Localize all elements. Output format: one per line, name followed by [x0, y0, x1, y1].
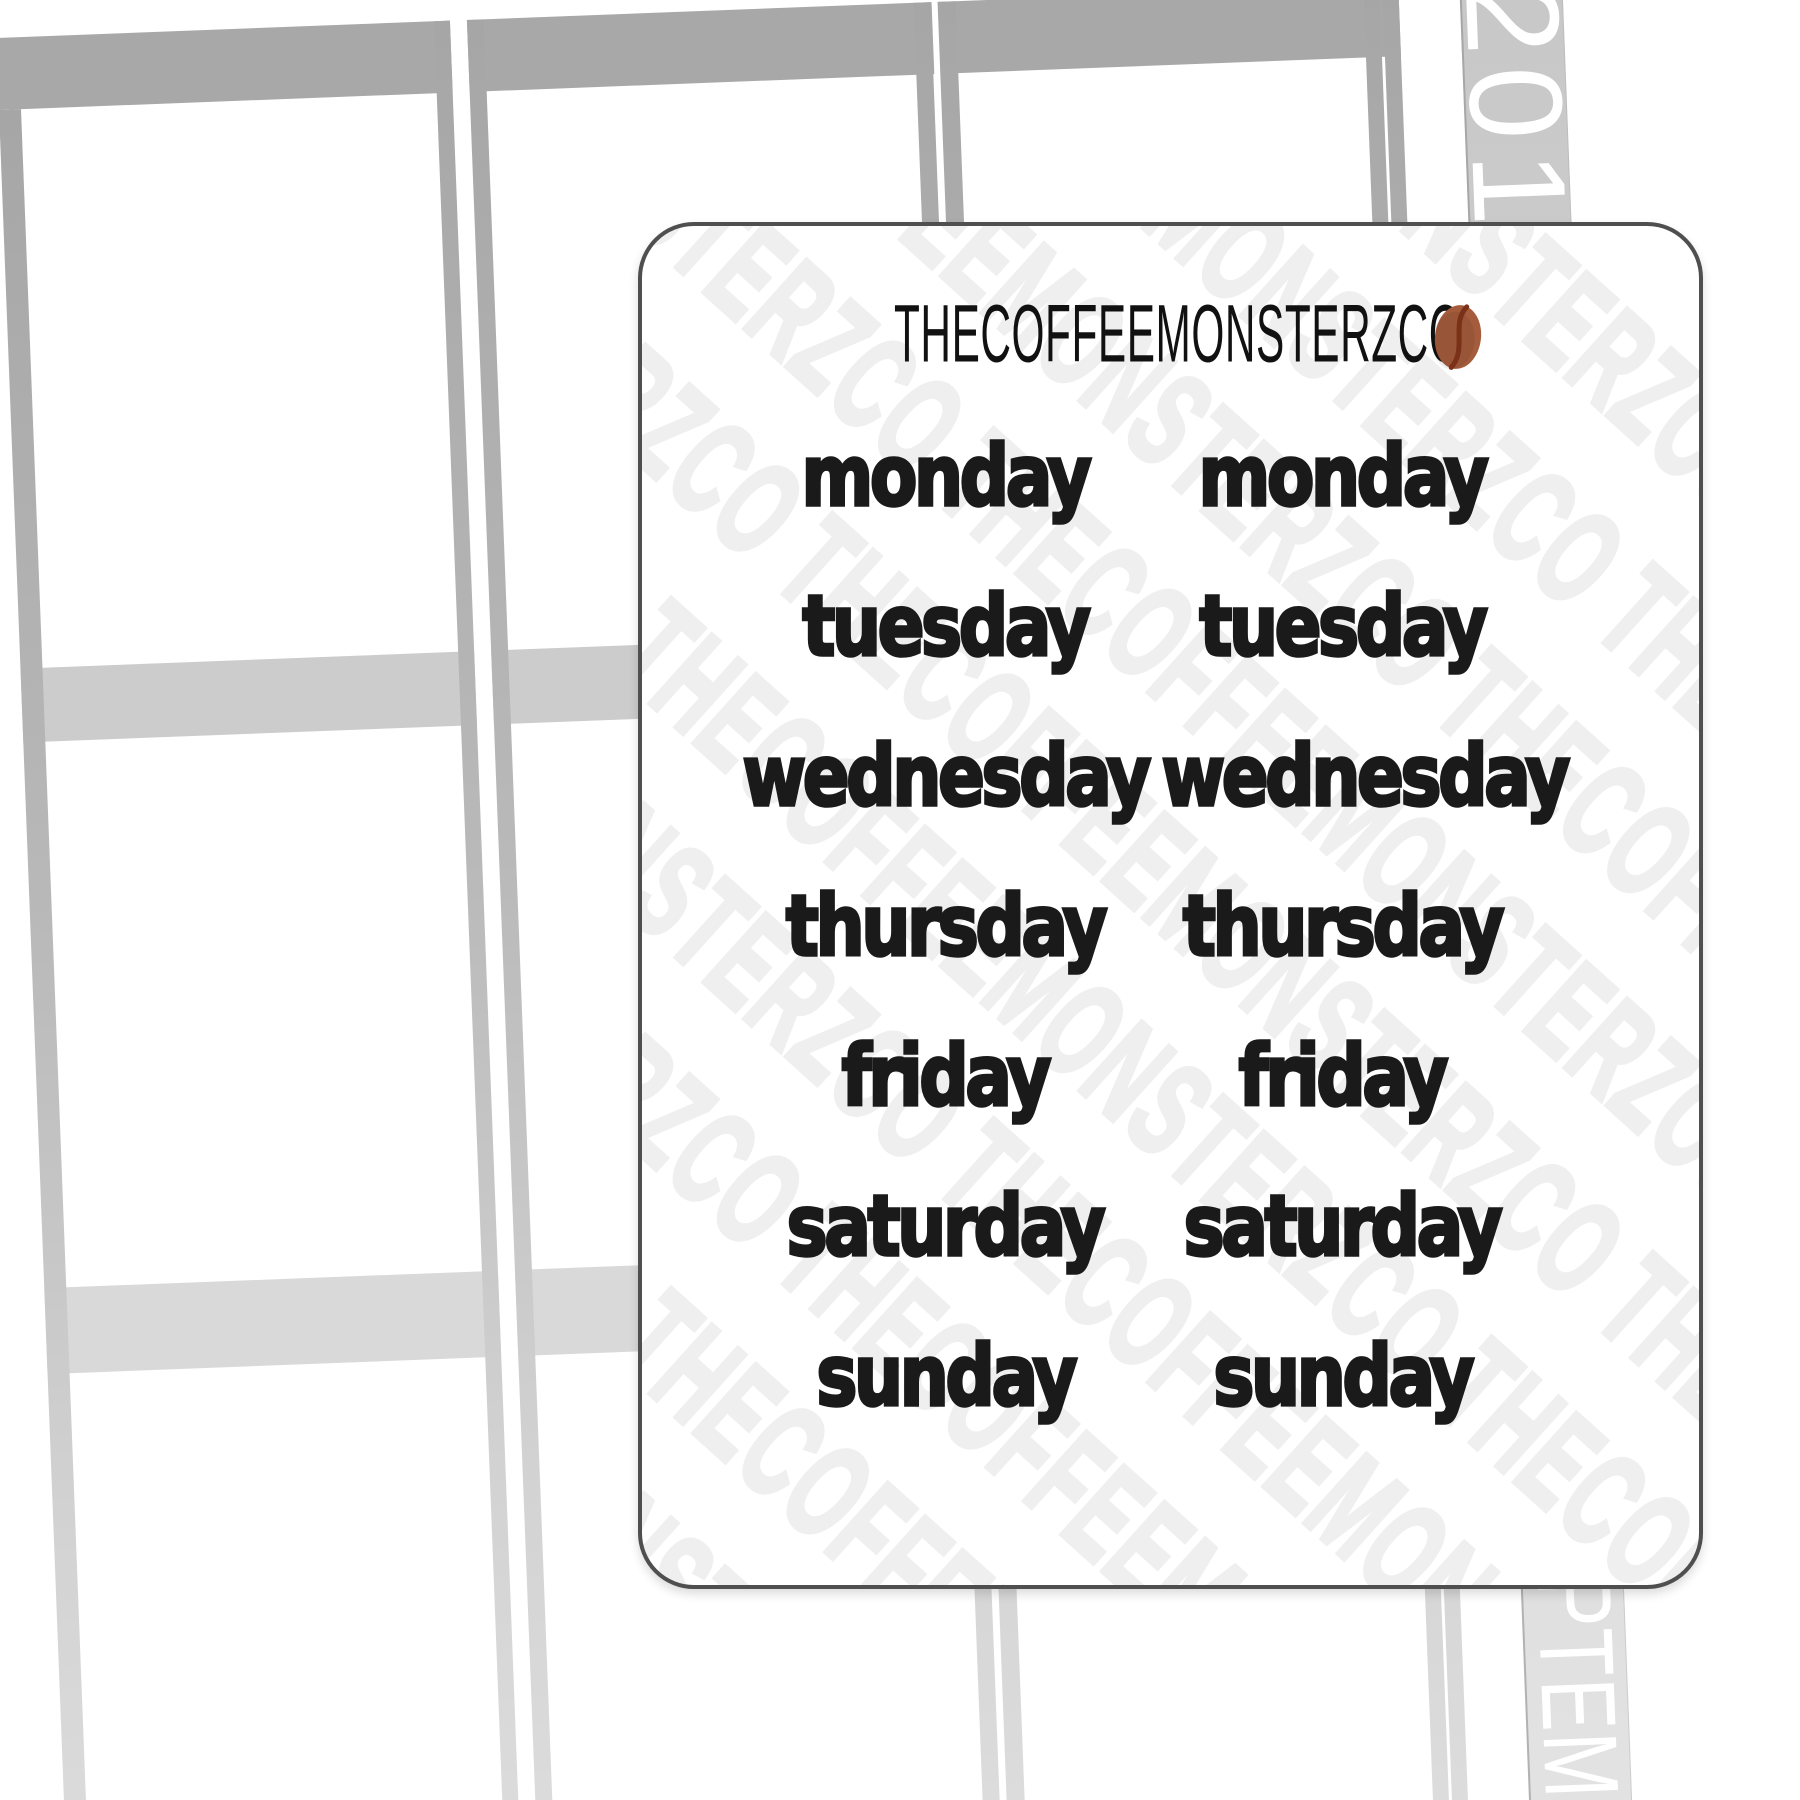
- sticker-friday: friday: [842, 1001, 1048, 1151]
- sticker-monday: monday: [801, 401, 1088, 551]
- sticker-wednesday: wednesday: [1162, 701, 1567, 851]
- sticker-thursday: thursday: [1183, 851, 1501, 1001]
- sticker-sunday: sunday: [1213, 1301, 1471, 1451]
- sticker-tuesday: tuesday: [1199, 551, 1484, 701]
- day-row: thursday: [1117, 851, 1567, 1001]
- day-row: tuesday: [1117, 551, 1567, 701]
- sticker-saturday: saturday: [787, 1151, 1103, 1301]
- day-row: monday: [1117, 401, 1567, 551]
- sticker-wednesday: wednesday: [742, 701, 1147, 851]
- sticker-sunday: sunday: [816, 1301, 1074, 1451]
- washi-tape-month-text: PTEMB: [1512, 1572, 1643, 1800]
- day-row: sunday: [1117, 1301, 1567, 1451]
- day-row: friday: [1117, 1001, 1567, 1151]
- day-row: wednesday: [1117, 701, 1567, 851]
- sticker-monday: monday: [1198, 401, 1485, 551]
- sticker-tuesday: tuesday: [802, 551, 1087, 701]
- brand-header: THECOFFEEMONSTERZCO: [642, 302, 1699, 366]
- sticker-thursday: thursday: [786, 851, 1104, 1001]
- product-photo: 2016/2 PTEMB THECOFFEEMONSTERZCO THECOFF…: [0, 0, 1800, 1800]
- sticker-sheet: THECOFFEEMONSTERZCO THECOFFEEMONSTERZCO …: [638, 222, 1703, 1589]
- brand-name: THECOFFEEMONSTERZCO: [894, 301, 1462, 366]
- sticker-friday: friday: [1239, 1001, 1445, 1151]
- sticker-saturday: saturday: [1184, 1151, 1500, 1301]
- coffee-bean-icon: [1432, 302, 1484, 372]
- day-column-right: monday tuesday wednesday thursday friday…: [1117, 401, 1567, 1451]
- day-row: saturday: [1117, 1151, 1567, 1301]
